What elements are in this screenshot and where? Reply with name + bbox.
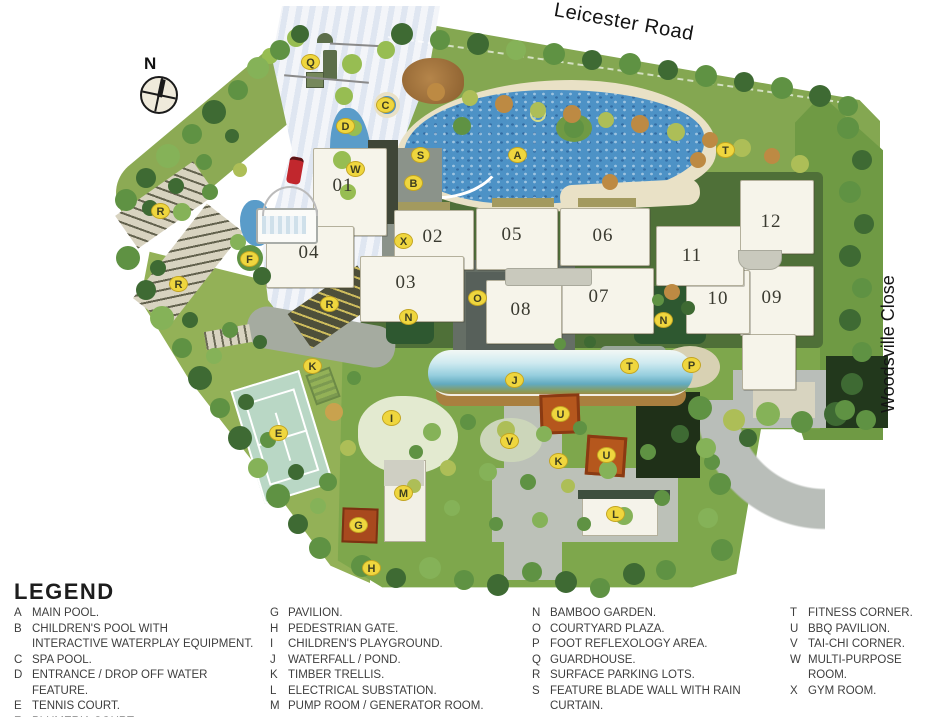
site-plan-map: N Leicester Road Woodsville Close 010203…	[0, 0, 943, 595]
map-marker-u: U	[551, 406, 570, 422]
map-marker-q: Q	[301, 54, 320, 70]
legend-item-i: ICHILDREN'S PLAYGROUND.	[270, 637, 528, 653]
map-marker-t: T	[620, 358, 639, 374]
pump-room-roof	[384, 460, 424, 486]
rock-mound	[402, 58, 464, 104]
canopy-08	[505, 268, 592, 286]
dropoff-canopy-glass	[262, 216, 306, 234]
canopy-11-12	[738, 250, 782, 270]
map-marker-s: S	[411, 147, 430, 163]
legend-item-u: UBBQ PAVILION.	[790, 622, 940, 638]
legend-item-b: BCHILDREN'S POOL WITHINTERACTIVE WATERPL…	[14, 622, 264, 653]
map-marker-r: R	[151, 203, 170, 219]
building-label-03: 03	[384, 272, 428, 294]
map-marker-t: T	[716, 142, 735, 158]
building-label-06: 06	[581, 225, 625, 247]
map-marker-g: G	[349, 517, 368, 533]
hedge-strip-02	[398, 202, 450, 210]
legend-item-j: JWATERFALL / POND.	[270, 653, 528, 669]
legend-item-g: GPAVILION.	[270, 606, 528, 622]
legend-title: LEGEND	[14, 579, 115, 605]
pool-island	[556, 114, 592, 142]
guardhouse-booth	[306, 72, 324, 88]
hedge-strip-06	[578, 198, 636, 207]
building-label-07: 07	[577, 286, 621, 308]
legend: LEGEND AMAIN POOL.BCHILDREN'S POOL WITHI…	[0, 579, 943, 717]
map-marker-p: P	[682, 357, 701, 373]
building-label-08: 08	[499, 299, 543, 321]
substation-hedge	[578, 490, 670, 499]
guardhouse	[323, 50, 337, 80]
legend-item-e: ETENNIS COURT.	[14, 699, 264, 715]
pool-ring-detail	[530, 106, 546, 122]
legend-item-h: HPEDESTRIAN GATE.	[270, 622, 528, 638]
map-marker-n: N	[654, 312, 673, 328]
map-marker-u: U	[597, 447, 616, 463]
legend-item-w: WMULTI-PURPOSE ROOM.	[790, 653, 940, 684]
map-marker-x: X	[394, 233, 413, 249]
legend-item-q: QGUARDHOUSE.	[532, 653, 784, 669]
map-marker-r: R	[169, 276, 188, 292]
building-09-annex-shape	[742, 334, 796, 390]
legend-item-d: DENTRANCE / DROP OFF WATER FEATURE.	[14, 668, 264, 699]
building-label-11: 11	[670, 245, 714, 267]
map-marker-w: W	[346, 161, 365, 177]
legend-item-m: MPUMP ROOM / GENERATOR ROOM.	[270, 699, 528, 715]
map-marker-h: H	[362, 560, 381, 576]
legend-item-k: KTIMBER TRELLIS.	[270, 668, 528, 684]
map-marker-d: D	[336, 118, 355, 134]
legend-item-s: SFEATURE BLADE WALL WITH RAINCURTAIN.	[532, 684, 784, 715]
map-marker-m: M	[394, 485, 413, 501]
tree-stamps	[0, 0, 8, 8]
map-marker-a: A	[508, 147, 527, 163]
legend-item-p: PFOOT REFLEXOLOGY AREA.	[532, 637, 784, 653]
waterfall-pond	[428, 350, 693, 396]
building-label-10: 10	[696, 288, 740, 310]
legend-item-c: CSPA POOL.	[14, 653, 264, 669]
hedge-strip-05	[492, 198, 554, 207]
building-label-09: 09	[750, 287, 794, 309]
map-marker-r: R	[320, 296, 339, 312]
map-marker-e: E	[269, 425, 288, 441]
map-marker-c: C	[376, 97, 395, 113]
map-marker-f: F	[240, 251, 259, 267]
site-plan: N Leicester Road Woodsville Close 010203…	[0, 0, 943, 717]
legend-column-1: AMAIN POOL.BCHILDREN'S POOL WITHINTERACT…	[14, 606, 264, 717]
map-marker-l: L	[606, 506, 625, 522]
map-marker-k: K	[549, 453, 568, 469]
legend-column-4: TFITNESS CORNER.UBBQ PAVILION.VTAI-CHI C…	[790, 606, 940, 699]
compass-north-label: N	[144, 54, 156, 74]
legend-item-r: RSURFACE PARKING LOTS.	[532, 668, 784, 684]
legend-item-n: NBAMBOO GARDEN.	[532, 606, 784, 622]
legend-column-2: GPAVILION.HPEDESTRIAN GATE.ICHILDREN'S P…	[270, 606, 528, 715]
map-marker-j: J	[505, 372, 524, 388]
legend-item-v: VTAI-CHI CORNER.	[790, 637, 940, 653]
building-label-04: 04	[287, 242, 331, 264]
map-marker-o: O	[468, 290, 487, 306]
legend-item-a: AMAIN POOL.	[14, 606, 264, 622]
map-marker-n: N	[399, 309, 418, 325]
map-marker-k: K	[303, 358, 322, 374]
building-label-12: 12	[749, 211, 793, 233]
building-label-05: 05	[490, 224, 534, 246]
compass-icon	[140, 76, 178, 114]
legend-item-t: TFITNESS CORNER.	[790, 606, 940, 622]
legend-column-3: NBAMBOO GARDEN.OCOURTYARD PLAZA.PFOOT RE…	[532, 606, 784, 715]
map-marker-v: V	[500, 433, 519, 449]
legend-item-l: LELECTRICAL SUBSTATION.	[270, 684, 528, 700]
map-marker-i: I	[382, 410, 401, 426]
road-label-woodsville: Woodsville Close	[878, 238, 899, 413]
legend-item-x: XGYM ROOM.	[790, 684, 940, 700]
building-label-01: 01	[321, 175, 365, 197]
building-label-02: 02	[411, 226, 455, 248]
guardhouse-dome	[317, 33, 333, 43]
legend-item-o: OCOURTYARD PLAZA.	[532, 622, 784, 638]
map-marker-b: B	[404, 175, 423, 191]
